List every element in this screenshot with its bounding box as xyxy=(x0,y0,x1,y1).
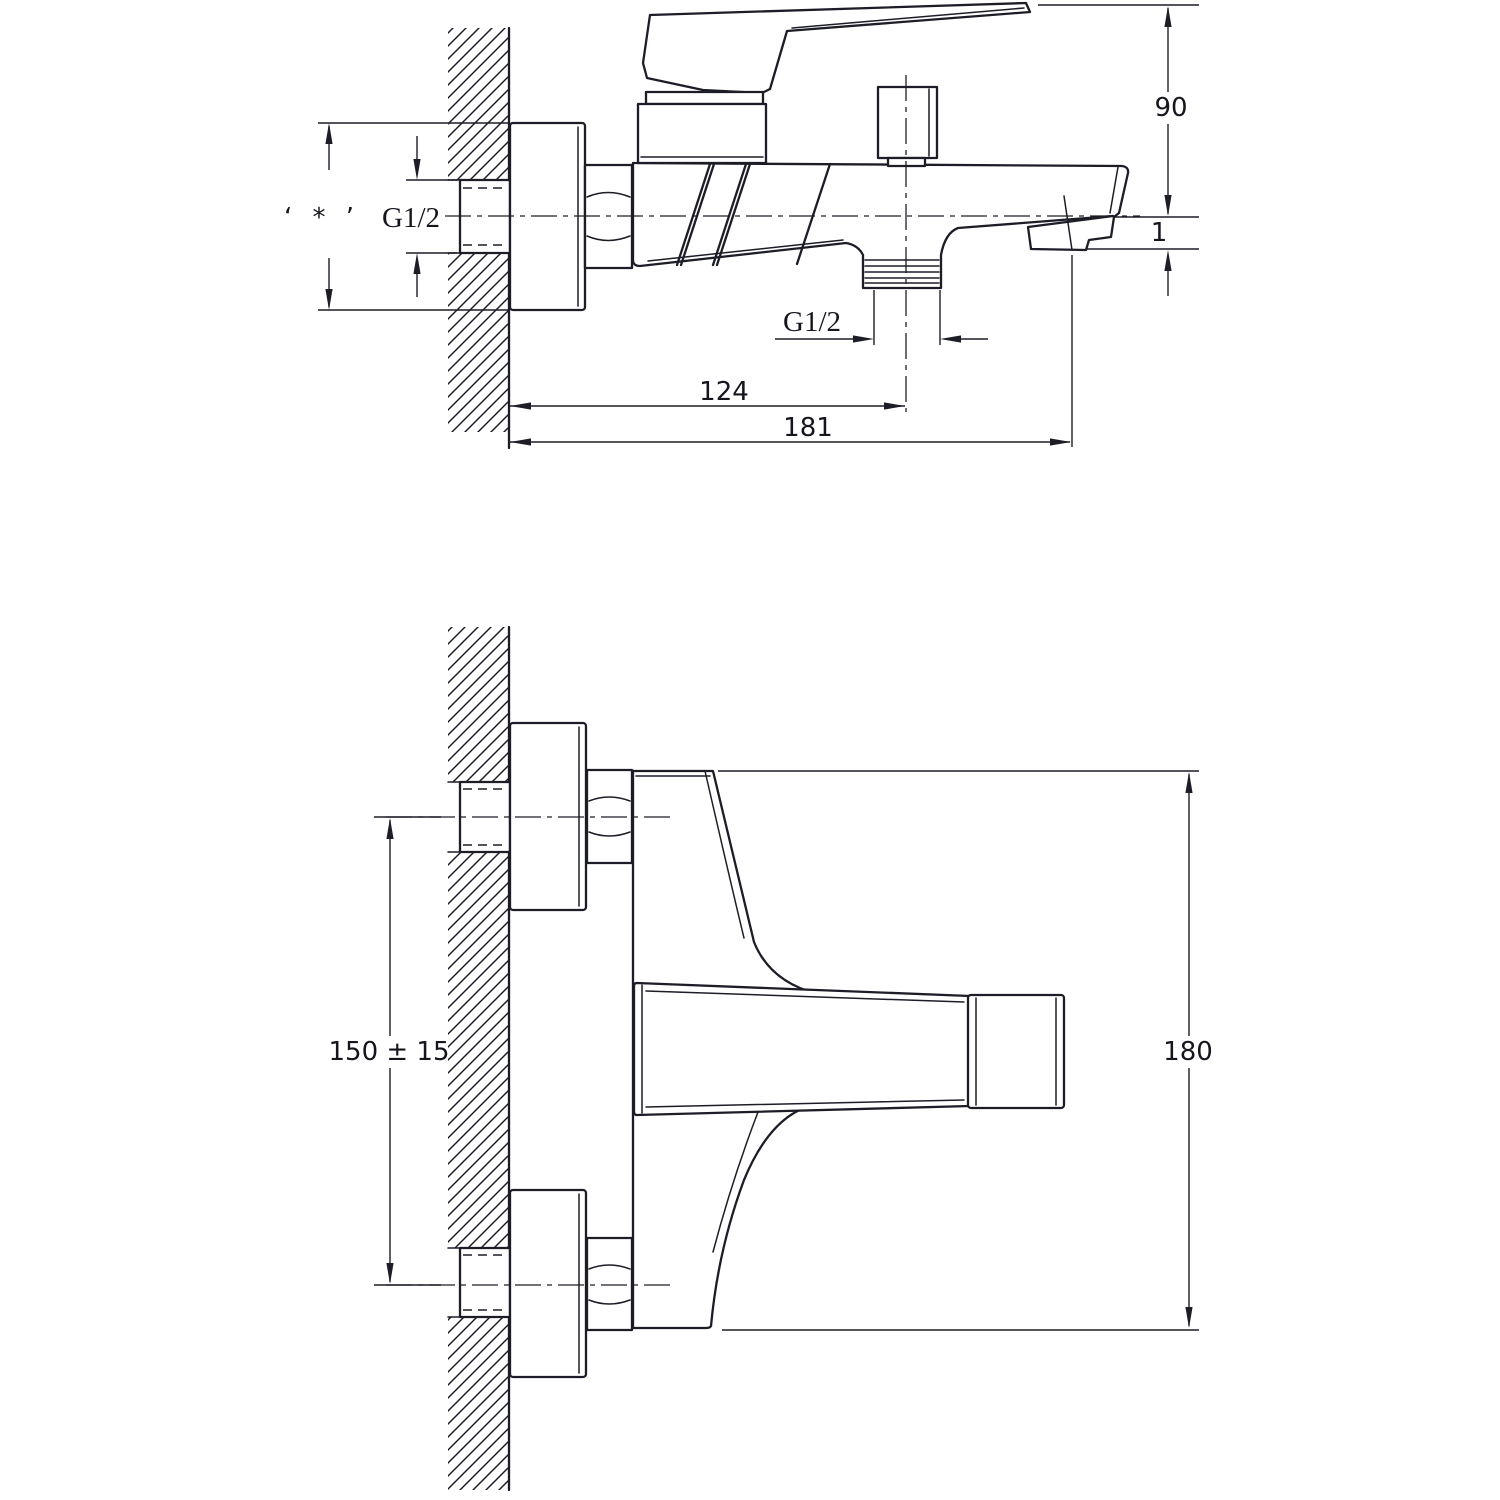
dimension-outlet-thread: G1/2 xyxy=(775,290,988,345)
outlet-thread-label: G1/2 xyxy=(783,306,841,338)
wall-to-outlet-label: 124 xyxy=(699,377,749,407)
note-asterisk-label: ‘ * ’ xyxy=(284,203,360,233)
wall-section-front xyxy=(448,627,509,1490)
dimension-wall-to-tip: 181 xyxy=(510,255,1072,447)
technical-drawing-page: ‘ * ’ G1/2 90 1 xyxy=(0,0,1500,1500)
faucet-body-side xyxy=(633,163,1128,288)
inlet-spacing-label: 150 ± 15 xyxy=(328,1037,449,1067)
handle-end-cap xyxy=(968,995,1064,1108)
handle-lever-front xyxy=(634,983,1064,1115)
front-view: 150 ± 15 180 xyxy=(328,627,1212,1490)
wall-thread-label: G1/2 xyxy=(382,202,440,234)
dimension-inlet-spacing: 150 ± 15 xyxy=(328,817,449,1285)
handle-lever-side xyxy=(638,3,1030,163)
faucet-dimension-drawing: ‘ * ’ G1/2 90 1 xyxy=(0,0,1500,1500)
wall-to-tip-label: 181 xyxy=(783,413,833,443)
spout-drop-label: 1 xyxy=(1151,218,1168,248)
overall-height-label: 180 xyxy=(1163,1037,1213,1067)
dimension-wall-to-outlet: 124 xyxy=(510,377,905,410)
spout-height-label: 90 xyxy=(1154,93,1187,123)
side-view: ‘ * ’ G1/2 90 1 xyxy=(284,3,1199,448)
diverter-knob xyxy=(878,87,937,166)
